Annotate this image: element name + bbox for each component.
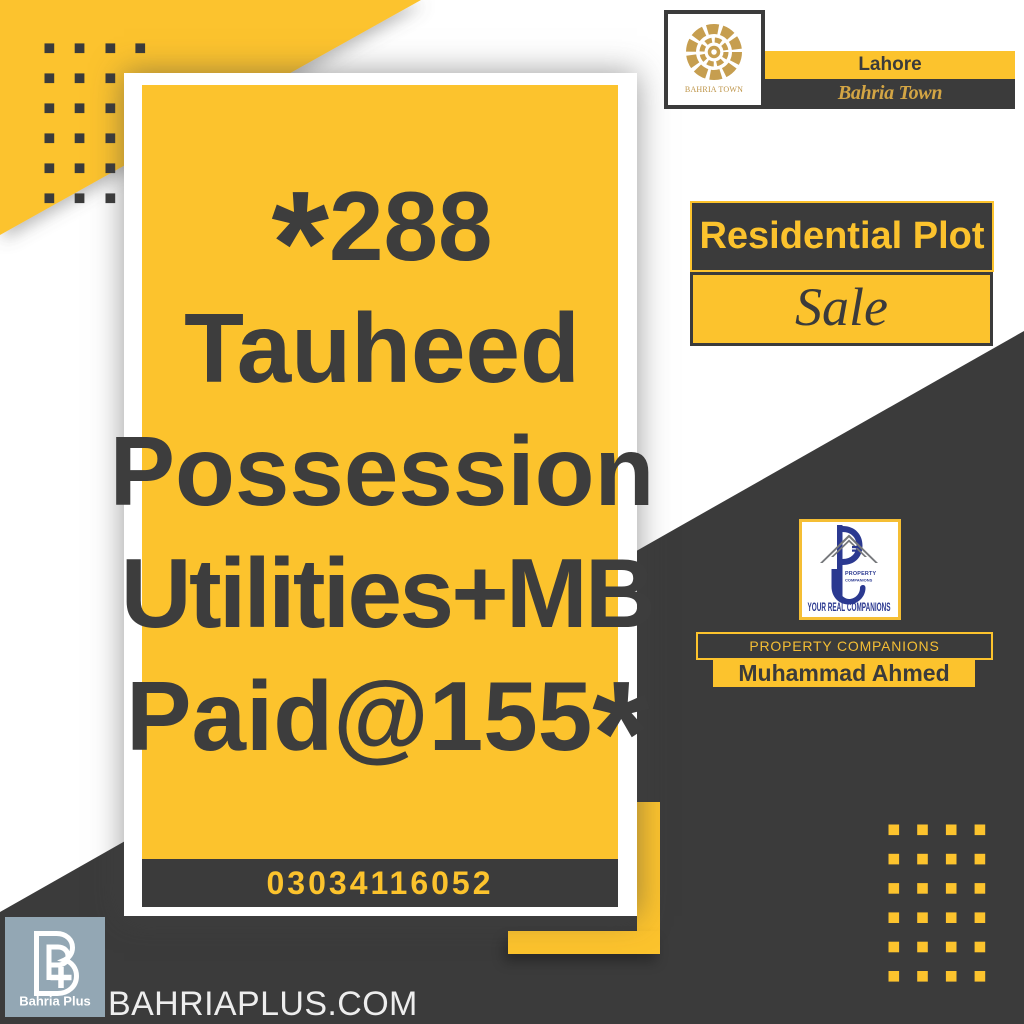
svg-text:BAHRIA TOWN: BAHRIA TOWN	[685, 85, 743, 94]
svg-text:PROPERTY: PROPERTY	[845, 571, 876, 577]
svg-text:YOUR REAL COMPANIONS: YOUR REAL COMPANIONS	[808, 602, 891, 614]
svg-text:Bahria Plus: Bahria Plus	[19, 994, 91, 1009]
svg-text:COMPANIONS: COMPANIONS	[845, 578, 873, 583]
